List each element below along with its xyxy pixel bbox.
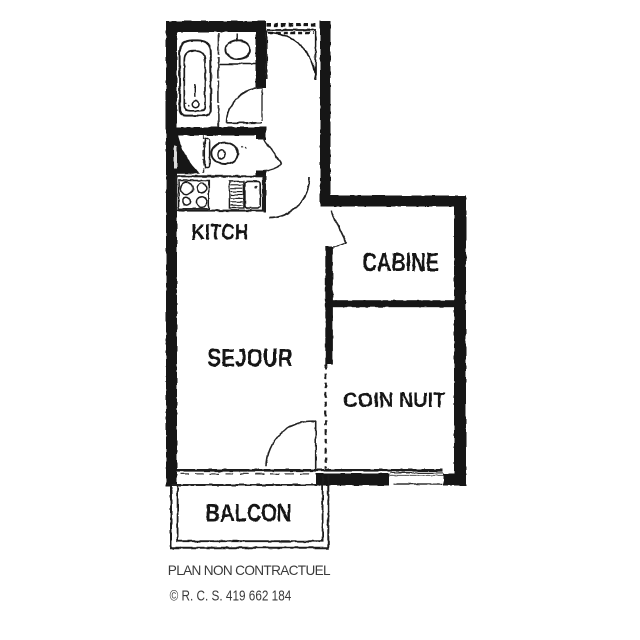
svg-text:KITCH: KITCH [191, 220, 248, 245]
svg-text:SEJOUR: SEJOUR [207, 345, 292, 373]
svg-text:BALCON: BALCON [205, 500, 291, 528]
svg-text:PLAN NON CONTRACTUEL: PLAN NON CONTRACTUEL [168, 563, 331, 578]
svg-text:COIN NUIT: COIN NUIT [343, 388, 445, 412]
svg-text:CABINE: CABINE [363, 247, 440, 277]
svg-text:© R. C. S. 419 662 184: © R. C. S. 419 662 184 [170, 588, 292, 605]
